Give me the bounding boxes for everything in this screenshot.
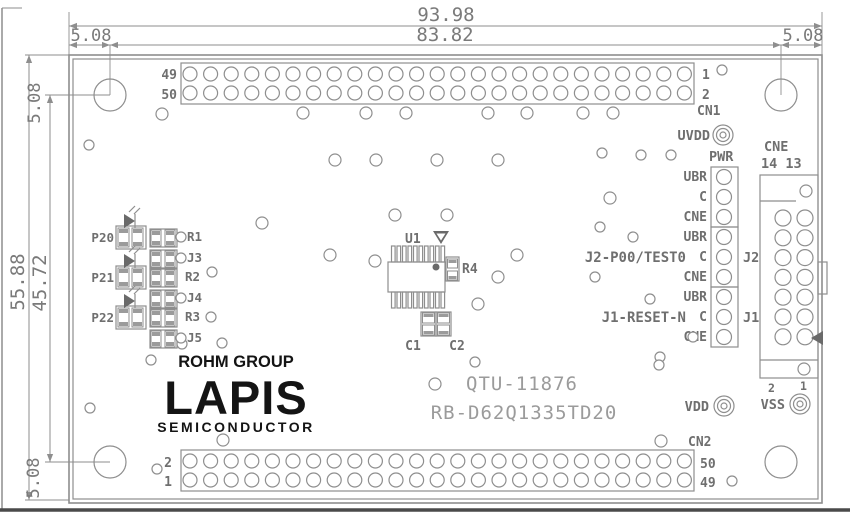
p22-footprint (116, 306, 146, 329)
cn1-pin1-label: 1 (702, 68, 710, 83)
board-identifiers: QTU-11876 RB-D62Q1335TD20 (431, 373, 618, 424)
cn2-designator: CN2 (688, 435, 711, 450)
cne-column-labels: 14 13 (761, 156, 802, 172)
dim-pin-span: 83.82 (416, 24, 473, 46)
j1-signal-label: J1-RESET-N (602, 310, 686, 326)
branding: ROHM GROUP LAPIS SEMICONDUCTOR (157, 353, 314, 435)
r2-label: R2 (185, 269, 200, 284)
j2-pin-c-label: C (699, 250, 707, 265)
pwr-pin-ubr-label: UBR (684, 170, 708, 185)
board-part-number: RB-D62Q1335TD20 (431, 402, 618, 424)
c2-label: C2 (449, 339, 465, 354)
r1-footprint (150, 229, 177, 247)
assembly-number: QTU-11876 (466, 373, 578, 395)
j5-footprint (150, 330, 177, 348)
dim-edge-offset-left-bottom: 5.08 (24, 458, 44, 499)
j5-label: J5 (187, 330, 202, 345)
dim-edge-offset-top-left: 5.08 (71, 26, 112, 46)
cn1-pin50-label: 50 (161, 88, 177, 103)
j4-label: J4 (187, 290, 202, 305)
p20-footprint (116, 226, 146, 249)
cne-bottom-pin1-label: 1 (800, 379, 807, 393)
j3-label: J3 (187, 250, 202, 265)
cn2-pin1-label: 1 (164, 475, 172, 490)
cn1-designator: CN1 (697, 104, 721, 119)
j2-pin-cne-label: CNE (684, 270, 707, 285)
connector-cn1: 49 50 1 2 CN1 (161, 63, 720, 119)
r4-footprint (446, 257, 459, 281)
cn2-pin-grid (183, 454, 691, 487)
cn1-pin-grid (183, 67, 691, 100)
c1-label: C1 (405, 339, 421, 354)
cne-pin-grid (775, 210, 813, 345)
j1-pin-ubr-label: UBR (684, 290, 708, 305)
dim-edge-offset-left-top: 5.08 (25, 83, 45, 124)
p21-label: P21 (91, 270, 114, 285)
ic-u1: U1 R4 C1 C2 (388, 231, 478, 354)
j2-designator: J2 (743, 250, 759, 266)
rohm-group-label: ROHM GROUP (178, 353, 294, 371)
j1-pin-c-label: C (699, 310, 707, 325)
j3-footprint (150, 250, 177, 268)
pcb-assembly-drawing: 93.98 83.82 5.08 5.08 55.88 45.72 5.08 5… (0, 0, 850, 520)
j4-footprint (150, 290, 177, 308)
vdd-label: VDD (685, 399, 709, 415)
dim-edge-offset-top-right: 5.08 (783, 26, 824, 46)
cne-bottom-pin2-label: 2 (768, 381, 775, 395)
connector-cn2: 2 1 50 49 CN2 (164, 435, 716, 491)
mounting-hole-bottom-right (765, 446, 797, 478)
uvdd-label: UVDD (677, 128, 710, 144)
lapis-logo: LAPIS (164, 371, 307, 424)
pwr-pin-c-label: C (699, 190, 707, 205)
dim-overall-width: 93.98 (417, 4, 474, 26)
vss-test-point (790, 394, 810, 414)
pwr-header-label: PWR (709, 149, 734, 165)
r3-footprint (150, 309, 177, 327)
r1-label: R1 (187, 229, 202, 244)
cn2-pin49-label: 49 (700, 476, 716, 491)
r4-label: R4 (462, 262, 478, 277)
p22-label: P22 (91, 310, 114, 325)
led-circuits: P20 P21 P22 R1 J3 R2 J4 R3 J5 (91, 206, 202, 348)
header-pin-column (717, 170, 732, 345)
dim-overall-height: 55.88 (7, 253, 29, 310)
uvdd-test-point (713, 125, 733, 145)
r3-label: R3 (185, 309, 200, 324)
c1-footprint (421, 312, 436, 336)
vdd-test-point (714, 396, 734, 416)
j2-pin-ubr-label: UBR (684, 230, 708, 245)
p20-label: P20 (91, 230, 114, 245)
drawing-canvas: 93.98 83.82 5.08 5.08 55.88 45.72 5.08 5… (0, 0, 850, 520)
cne-pin1-arrow-marker (811, 331, 823, 345)
p20-led-icon (124, 206, 140, 228)
cn2-pin2-label: 2 (164, 456, 172, 471)
r2-footprint (150, 269, 177, 287)
dim-hole-span: 45.72 (29, 254, 51, 311)
u1-label: U1 (405, 232, 421, 247)
connector-cne: CNE 14 13 2 1 (760, 139, 827, 395)
cn2-pin50-label: 50 (700, 457, 716, 472)
cne-designator: CNE (764, 139, 788, 155)
j2-signal-label: J2-P00/TEST0 (585, 250, 686, 266)
vss-label: VSS (761, 397, 785, 413)
cn1-pin49-label: 49 (161, 68, 177, 83)
cn1-pin2-label: 2 (702, 88, 710, 103)
semiconductor-label: SEMICONDUCTOR (157, 419, 314, 435)
j1-designator: J1 (743, 310, 759, 326)
p21-footprint (116, 266, 146, 289)
pwr-pin-cne-label: CNE (684, 210, 707, 225)
c2-footprint (436, 312, 451, 336)
u1-pins (392, 246, 445, 308)
u1-pin1-dot (433, 264, 440, 271)
jumper-headers: PWR UBR C CNE UBR C CNE UBR C CNE J2-P00… (585, 149, 759, 347)
